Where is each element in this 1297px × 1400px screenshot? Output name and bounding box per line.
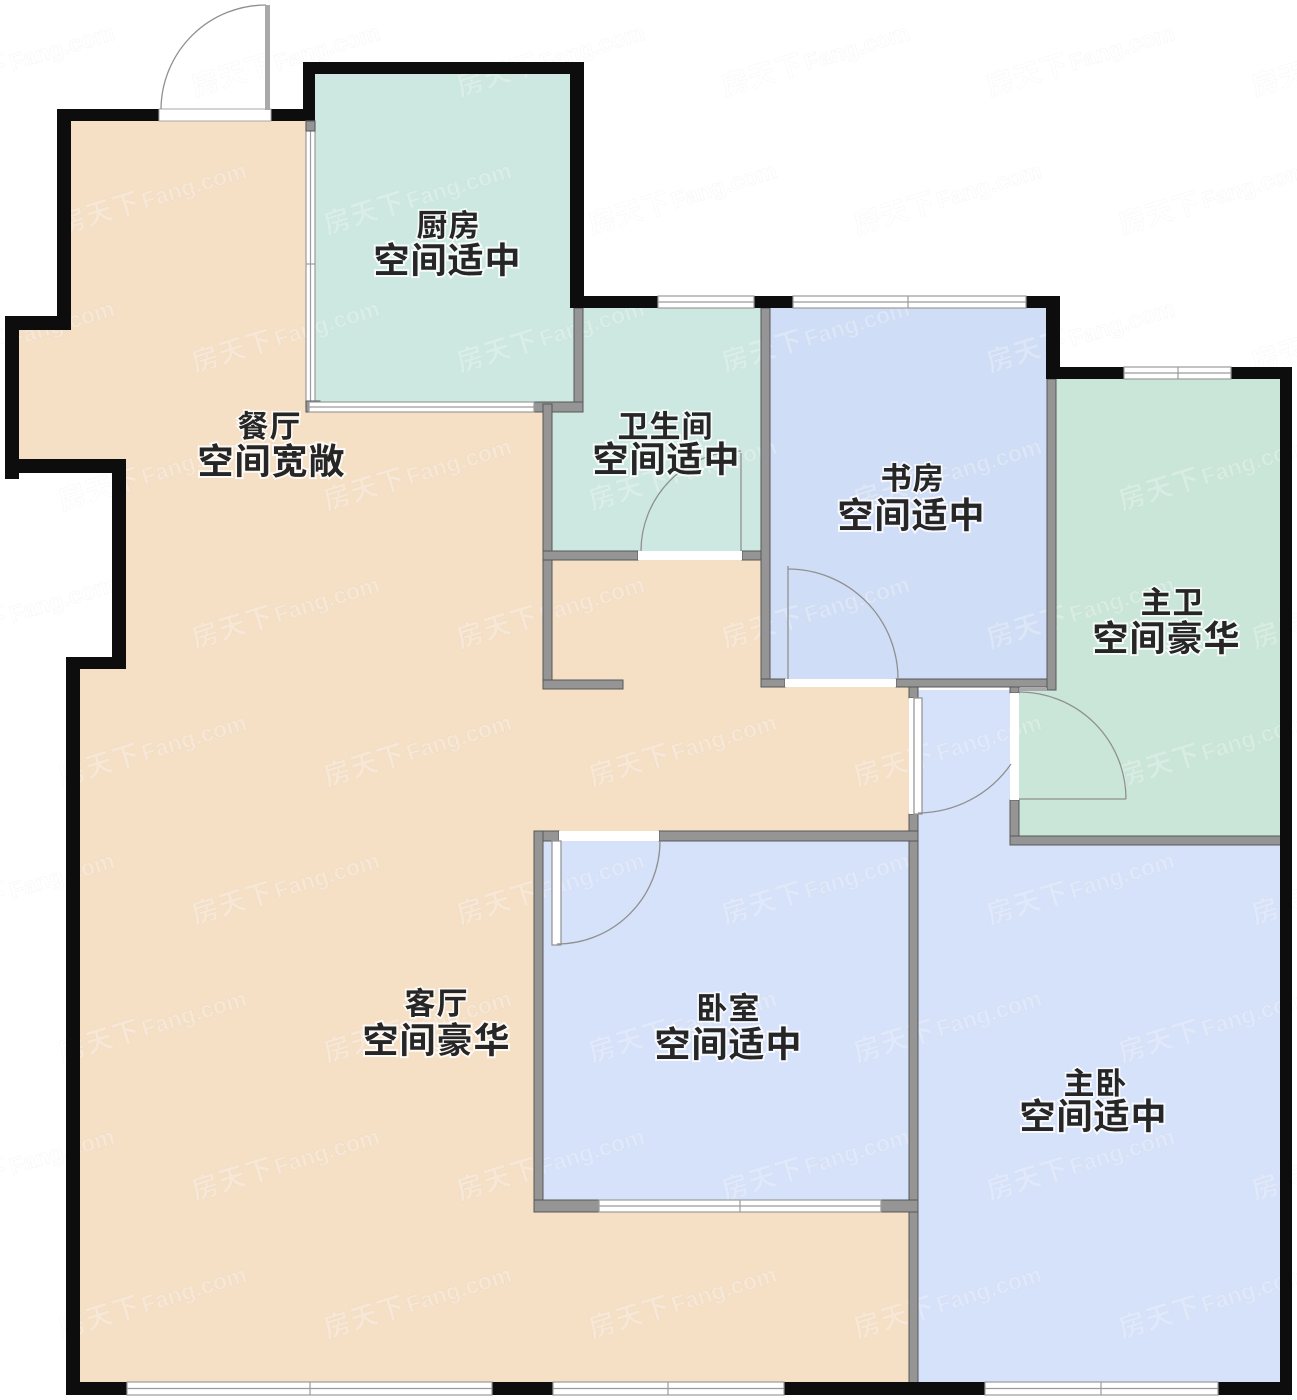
svg-text:Fang.com: Fang.com	[1066, 19, 1177, 76]
svg-text:Fang.com: Fang.com	[1198, 157, 1297, 214]
svg-text:Fang.com: Fang.com	[6, 19, 117, 76]
svg-text:Fang.com: Fang.com	[668, 157, 779, 214]
svg-text:Fang.com: Fang.com	[1066, 295, 1177, 352]
svg-text:Fang.com: Fang.com	[933, 157, 1044, 214]
svg-text:Fang.com: Fang.com	[801, 19, 912, 76]
svg-text:Fang.com: Fang.com	[6, 571, 117, 628]
